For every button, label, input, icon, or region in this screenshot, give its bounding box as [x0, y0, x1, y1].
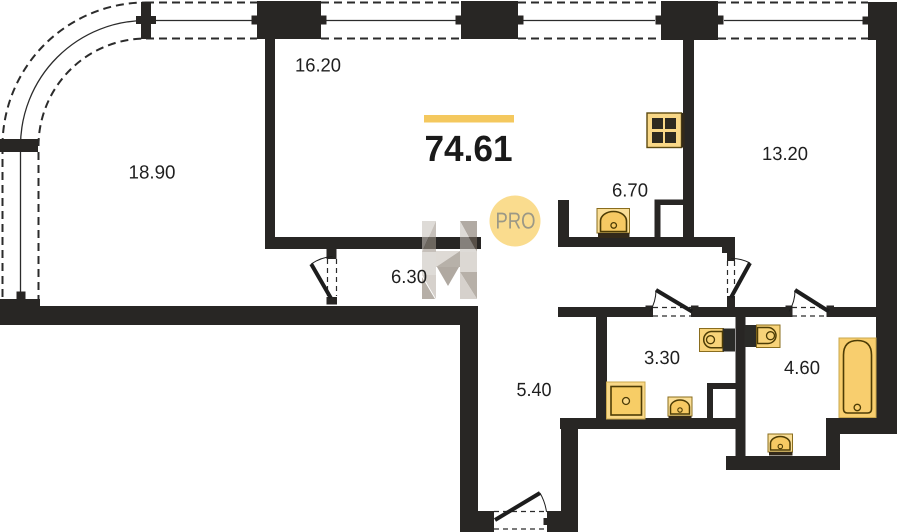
svg-text:16.20: 16.20 [295, 56, 341, 77]
svg-text:3.30: 3.30 [644, 348, 680, 369]
svg-text:5.40: 5.40 [517, 380, 552, 401]
svg-text:6.70: 6.70 [612, 181, 648, 202]
svg-text:74.61: 74.61 [425, 128, 513, 169]
svg-text:PRO: PRO [496, 208, 536, 234]
svg-text:4.60: 4.60 [784, 358, 820, 379]
svg-text:6.30: 6.30 [391, 267, 427, 288]
svg-text:13.20: 13.20 [762, 144, 808, 165]
svg-text:18.90: 18.90 [129, 163, 176, 184]
